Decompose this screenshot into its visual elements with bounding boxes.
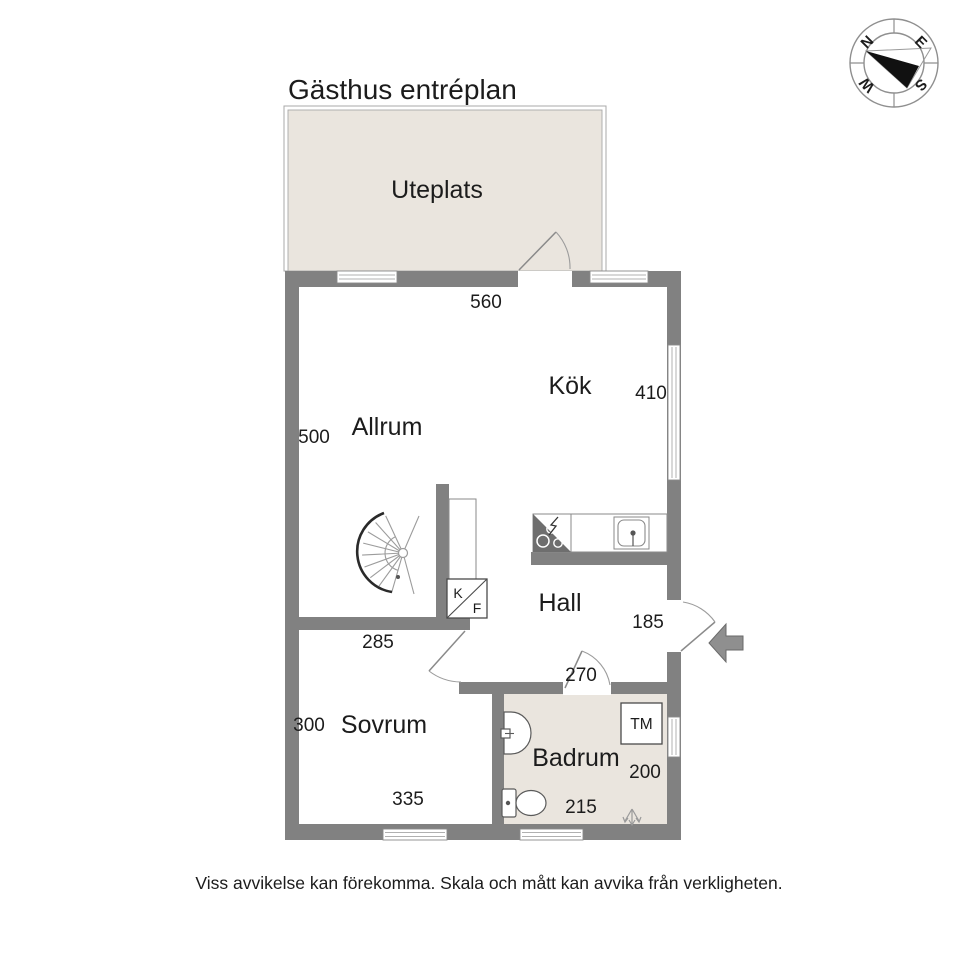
window-right-kok — [668, 345, 680, 480]
compass-west-label: W — [856, 73, 879, 96]
stair-walkline-dot — [396, 575, 400, 579]
fridge-label: K — [453, 585, 463, 601]
washing-machine-label: TM — [630, 716, 652, 733]
window-right-badrum — [668, 717, 680, 757]
room-label-allrum: Allrum — [352, 413, 423, 441]
washing-machine: TM — [621, 703, 662, 744]
room-label-hall: Hall — [538, 589, 581, 617]
wall-kok-hall — [531, 552, 681, 565]
room-label-uteplats: Uteplats — [391, 176, 483, 204]
room-label-sovrum: Sovrum — [341, 711, 427, 739]
dimension-allrum-height: 500 — [298, 427, 330, 448]
dimension-sovrum-height: 300 — [293, 715, 325, 736]
closet — [449, 499, 476, 579]
spiral-staircase — [357, 513, 419, 594]
stair-outer-arc — [357, 513, 392, 592]
floor-plan-page: K F TM Gästhus entréplan Uteplats 560 Kö… — [0, 0, 960, 960]
wall-bottom — [285, 824, 681, 840]
dimension-sovrum-width: 335 — [392, 789, 424, 810]
window-top-left — [337, 271, 397, 283]
room-label-kok: Kök — [548, 372, 592, 400]
wall-sovrum-top — [285, 617, 470, 630]
door-sovrum — [429, 631, 465, 682]
dimension-hall-width: 185 — [632, 612, 664, 633]
compass-rose-icon: N E S W — [850, 19, 938, 107]
dimension-badrum-height: 200 — [629, 762, 661, 783]
page-title: Gästhus entréplan — [288, 74, 517, 105]
kf-cabinet: K F — [447, 579, 487, 618]
dimension-sovrum-top: 285 — [362, 632, 394, 653]
dimension-badrum-width: 215 — [565, 797, 597, 818]
freezer-label: F — [473, 600, 482, 616]
disclaimer-text: Viss avvikelse kan förekomma. Skala och … — [195, 873, 782, 893]
window-bottom-badrum — [520, 829, 583, 840]
floor-plan-canvas: K F TM Gästhus entréplan Uteplats 560 Kö… — [0, 0, 960, 960]
opening-uteplats-door — [518, 271, 572, 288]
toilet-icon — [502, 789, 546, 817]
sink-icon — [614, 517, 649, 549]
stove-icon — [533, 514, 571, 552]
dimension-kok-height: 410 — [635, 383, 667, 404]
window-bottom-sovrum — [383, 829, 447, 840]
opening-entrance-door — [666, 600, 682, 652]
window-top-right — [590, 271, 648, 283]
compass-south-label: S — [911, 75, 930, 94]
stair-center-post — [399, 549, 408, 558]
wall-left — [285, 271, 299, 840]
kitchen-fixtures — [533, 514, 667, 552]
room-label-badrum: Badrum — [532, 744, 620, 772]
dimension-badrum-door: 270 — [565, 665, 597, 686]
dimension-top-width: 560 — [470, 292, 502, 313]
entrance-arrow-icon — [709, 624, 743, 662]
